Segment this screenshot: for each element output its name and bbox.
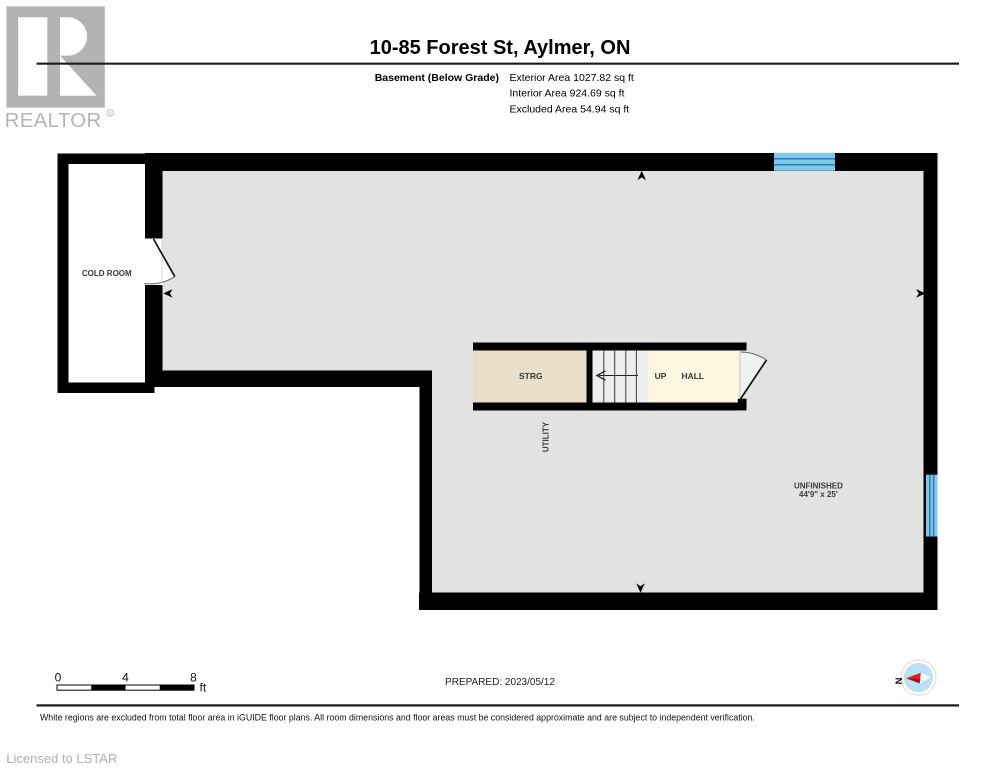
svg-text:PREPARED: 2023/05/12: PREPARED: 2023/05/12 [445,677,555,688]
svg-text:REALTOR: REALTOR [5,109,102,132]
svg-text:Licensed to LSTAR: Licensed to LSTAR [6,751,117,766]
svg-text:0: 0 [55,671,62,685]
svg-text:N: N [892,678,903,685]
svg-text:8: 8 [190,671,197,685]
svg-text:UTILITY: UTILITY [542,421,551,452]
svg-text:ft: ft [200,681,207,695]
svg-text:HALL: HALL [681,371,704,381]
svg-text:Exterior Area 1027.82 sq ft: Exterior Area 1027.82 sq ft [510,72,634,84]
svg-text:STRG: STRG [519,371,543,381]
svg-text:COLD ROOM: COLD ROOM [82,269,132,278]
svg-text:Excluded Area 54.94 sq ft: Excluded Area 54.94 sq ft [510,103,630,115]
svg-text:UNFINISHED: UNFINISHED [794,481,843,490]
svg-text:10-85 Forest St, Aylmer, ON: 10-85 Forest St, Aylmer, ON [370,37,631,59]
svg-text:Interior Area 924.69 sq ft: Interior Area 924.69 sq ft [510,88,625,100]
svg-text:44'9" x 25': 44'9" x 25' [799,490,838,499]
svg-text:White regions are excluded fro: White regions are excluded from total fl… [40,713,755,723]
svg-text:Basement (Below Grade): Basement (Below Grade) [375,72,499,84]
svg-text:4: 4 [122,671,129,685]
svg-text:UP: UP [655,371,667,381]
